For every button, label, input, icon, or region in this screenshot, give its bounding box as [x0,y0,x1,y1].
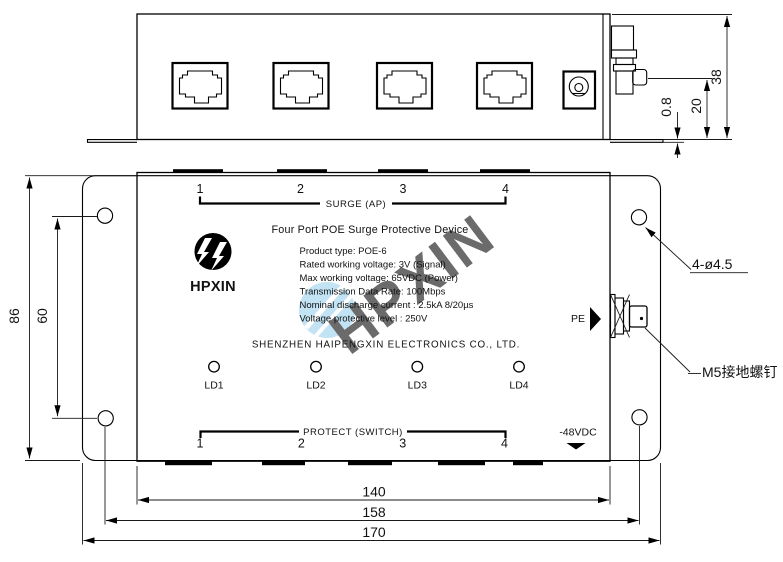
rj45-port-4 [477,63,532,109]
right-mount-tab [610,140,663,143]
top-view-body [137,14,610,140]
device-title: Four Port POE Surge Protective Device [271,224,468,236]
spec-protective-level: Voltage protective level : 250V [300,314,428,325]
led-1 [209,361,220,372]
dim-86-label: 86 [6,308,22,324]
pe-label: PE [571,313,585,325]
holes-callout-label: 4-ø4.5 [692,256,733,272]
mounting-hole-bottom-left [98,411,113,426]
ground-screw-top-view [612,26,647,94]
engineering-drawing: HPXIN [0,0,783,562]
left-mount-tab [88,140,138,143]
rj45-port-2 [274,63,329,109]
dim-0-8: 0.8 [658,97,684,158]
ground-screw-callout-label: M5接地螺钉 [702,364,777,380]
power-label: -48VDC [559,427,597,439]
led-3 [412,361,423,372]
protect-port-4: 4 [501,437,508,451]
dim-140-label: 140 [362,484,386,500]
led-4 [514,361,525,372]
surge-label: SURGE (AP) [326,199,386,210]
spec-max-voltage: Max working voltage: 65VDC (Power) [300,273,458,284]
dim-20-label: 20 [688,98,704,114]
rj45-port-3 [377,63,432,109]
protect-port-2: 2 [298,437,305,451]
dim-140: 140 [137,466,610,505]
spec-data-rate: Transmission Data Rate: 100Mbps [300,287,446,298]
mounting-hole-bottom-right [632,410,647,425]
company-name: SHENZHEN HAIPENGXIN ELECTRONICS CO., LTD… [252,340,520,351]
pe-marking: PE [571,307,601,331]
led-2 [311,361,322,372]
dim-170-label: 170 [362,524,386,540]
spec-product-type: Product type: POE-6 [300,246,387,257]
led-indicators: LD1 LD2 LD3 LD4 [204,361,528,391]
dim-158: 158 [105,426,640,525]
dim-38-label: 38 [708,69,724,85]
dim-60: 60 [34,217,97,419]
led-4-label: LD4 [509,380,528,392]
led-3-label: LD3 [408,380,427,392]
spec-rated-voltage: Rated working voltage: 3V (Signal) [300,260,446,271]
led-2-label: LD2 [306,380,325,392]
spec-discharge-current: Nominal discharge current : 2.5kA 8/20µs [300,300,474,311]
surge-port-4: 4 [502,182,509,196]
logo-text: HPXIN [190,279,236,295]
power-marking: -48VDC [559,427,597,450]
annotation-ground-screw: M5接地螺钉 [645,328,777,380]
led-1-label: LD1 [204,380,223,392]
surge-port-2: 2 [297,182,304,196]
mounting-hole-top-left [97,208,112,223]
protect-port-1: 1 [197,437,204,451]
hpxin-logo: HPXIN [190,233,236,295]
protect-label: PROTECT (SWITCH) [303,427,403,438]
protect-row: PROTECT (SWITCH) 1 2 3 4 [197,427,509,451]
mounting-hole-top-right [631,210,646,225]
rj45-port-1 [173,63,228,109]
dim-158-label: 158 [362,504,386,520]
dim-60-label: 60 [34,308,50,324]
dim-0-8-label: 0.8 [658,97,674,117]
surge-port-1: 1 [197,182,204,196]
dim-86: 86 [6,176,137,461]
ground-screw-front-view [611,295,648,338]
surge-port-3: 3 [400,182,407,196]
dim-38: 38 [612,15,732,140]
right-triangle-icon [590,307,601,331]
top-view: 38 20 0.8 [88,14,733,158]
protect-port-3: 3 [399,437,406,451]
dc-jack [564,72,596,109]
front-view: 1 2 3 4 SURGE (AP) Four Port POE Surge P… [6,169,777,544]
down-triangle-icon [567,443,586,450]
